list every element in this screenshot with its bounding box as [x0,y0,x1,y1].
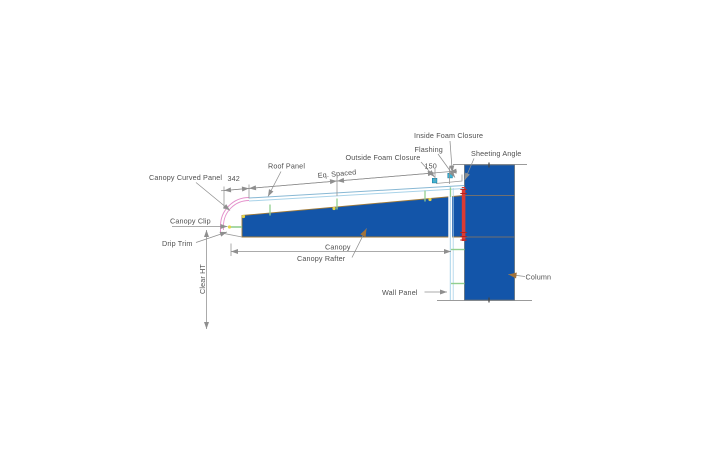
fastener-dot-4 [228,225,231,228]
fastener-dot-3 [428,198,431,201]
drip-trim-label: Drip Trim [162,239,193,248]
canvas-background [0,0,703,476]
canopy-detail-page: Inside Foam Closure Flashing Sheeting An… [0,0,703,476]
inside-foam-closure-label: Inside Foam Closure [414,131,483,140]
outside-foam-closure-label: Outside Foam Closure [346,153,421,162]
fastener-dot-2 [332,207,335,210]
outside-foam-closure-shape [432,178,437,183]
wall-panel-label: Wall Panel [382,288,418,297]
canopy-rafter-label: Canopy Rafter [297,254,346,263]
inside-foam-closure-shape [448,173,453,178]
column-shape [465,165,515,300]
canopy-detail-diagram: Inside Foam Closure Flashing Sheeting An… [0,0,703,476]
column-label: Column [526,273,552,282]
canopy-clip-label: Canopy Clip [170,217,211,226]
clear-ht-label: Clear HT [198,264,207,294]
canopy-curved-panel-label: Canopy Curved Panel [149,173,222,182]
roof-panel-label: Roof Panel [268,162,305,171]
canopy-label: Canopy [325,243,351,252]
dim-150-label: 150 [425,162,437,171]
fastener-dot-1 [242,215,245,218]
sheeting-angle-label: Sheeting Angle [471,149,521,158]
dim-342-label: 342 [228,174,240,183]
